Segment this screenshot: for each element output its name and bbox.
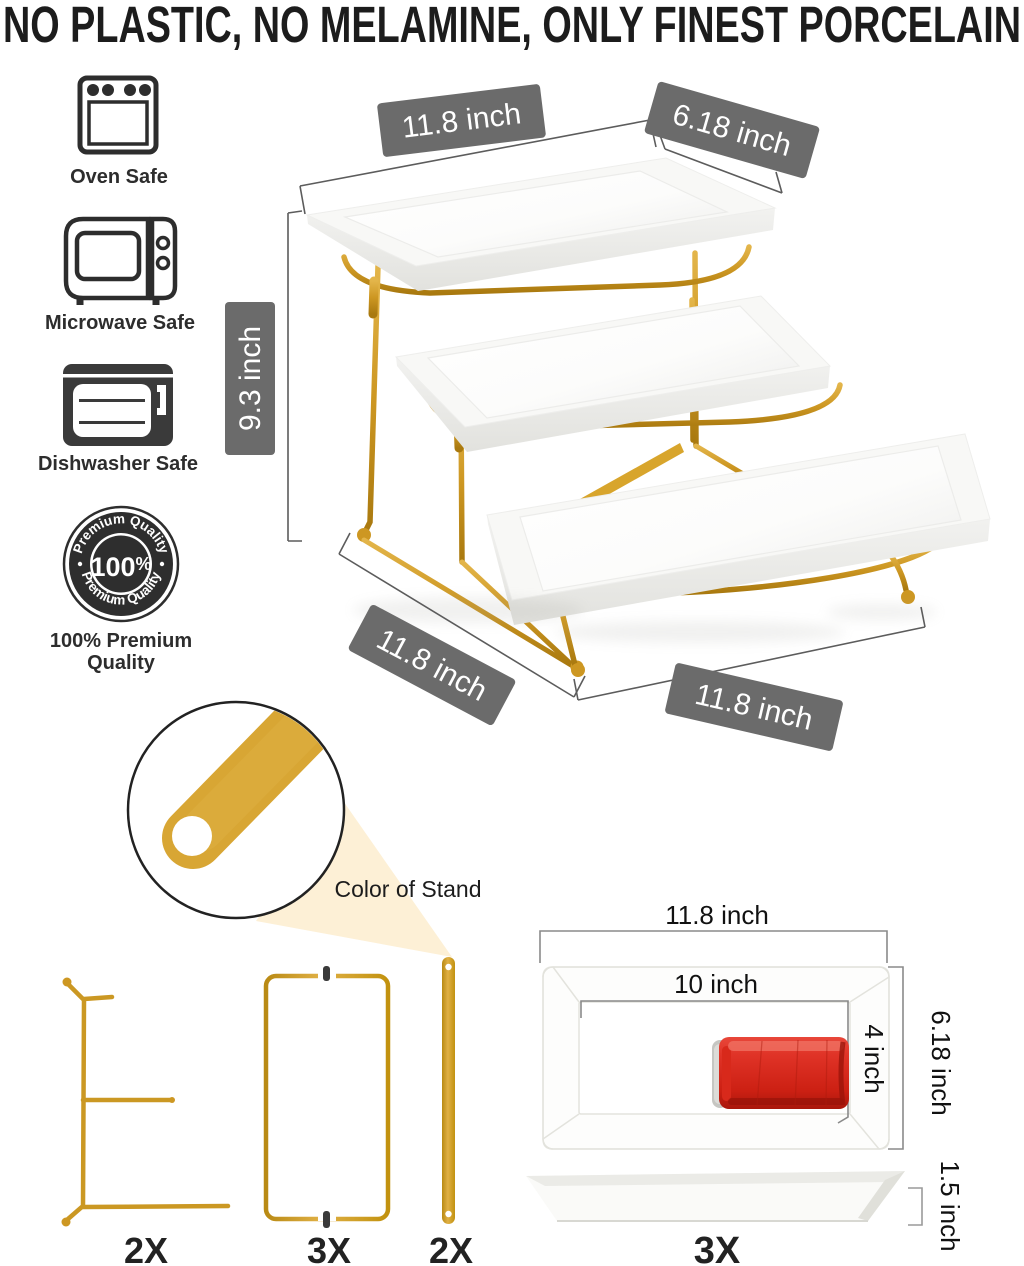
svg-text:NO PLASTIC, NO MELAMINE, ONLY: NO PLASTIC, NO MELAMINE, ONLY FINEST POR… <box>3 0 1021 53</box>
svg-text:Quality: Quality <box>87 652 156 674</box>
svg-text:4 inch: 4 inch <box>859 1024 889 1093</box>
svg-text:Color of Stand: Color of Stand <box>334 876 481 902</box>
svg-text:2X: 2X <box>429 1230 473 1266</box>
svg-text:Microwave Safe: Microwave Safe <box>45 312 195 334</box>
svg-text:6.18 inch: 6.18 inch <box>926 1010 956 1116</box>
svg-text:10 inch: 10 inch <box>674 969 758 999</box>
svg-text:11.8 inch: 11.8 inch <box>665 900 769 930</box>
svg-text:3X: 3X <box>307 1230 351 1266</box>
svg-text:Oven Safe: Oven Safe <box>70 166 168 188</box>
svg-text:3X: 3X <box>694 1230 741 1266</box>
svg-text:Dishwasher Safe: Dishwasher Safe <box>38 453 198 475</box>
svg-text:1.5 inch: 1.5 inch <box>935 1160 965 1251</box>
svg-text:100% Premium: 100% Premium <box>50 630 192 652</box>
svg-text:2X: 2X <box>124 1230 168 1266</box>
svg-text:9.3 inch: 9.3 inch <box>234 326 267 431</box>
